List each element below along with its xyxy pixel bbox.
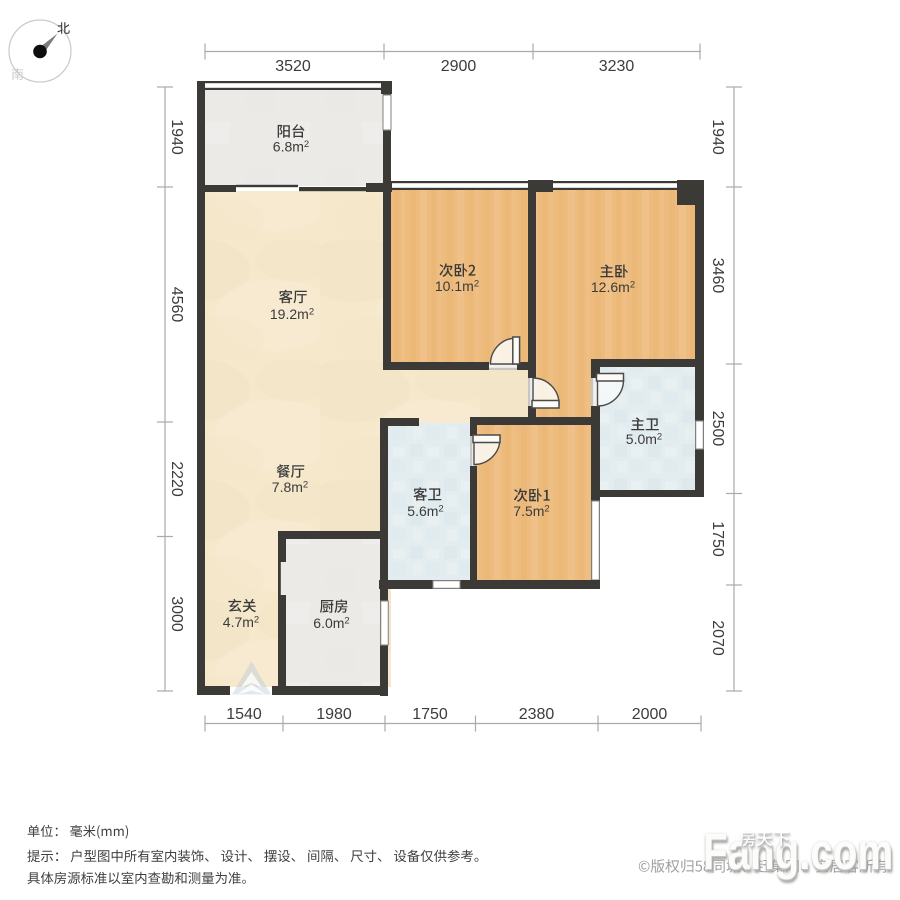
svg-text:6.8m2: 6.8m2 bbox=[273, 139, 309, 155]
svg-text:12.6m2: 12.6m2 bbox=[591, 279, 635, 295]
svg-text:2220: 2220 bbox=[168, 461, 185, 497]
svg-text:1750: 1750 bbox=[709, 521, 726, 557]
svg-text:2900: 2900 bbox=[441, 58, 477, 75]
svg-text:2500: 2500 bbox=[709, 411, 726, 447]
svg-text:3000: 3000 bbox=[168, 596, 185, 632]
svg-text:2070: 2070 bbox=[709, 620, 726, 656]
svg-text:3230: 3230 bbox=[599, 58, 635, 75]
svg-text:Fang.com: Fang.com bbox=[703, 822, 893, 880]
svg-text:5.0m2: 5.0m2 bbox=[626, 431, 662, 447]
svg-text:2000: 2000 bbox=[632, 706, 668, 723]
svg-text:3460: 3460 bbox=[709, 258, 726, 294]
svg-text:1940: 1940 bbox=[709, 119, 726, 155]
svg-text:1980: 1980 bbox=[316, 706, 352, 723]
svg-text:5.6m2: 5.6m2 bbox=[407, 503, 443, 519]
svg-text:4.7m2: 4.7m2 bbox=[223, 614, 259, 630]
svg-text:7.8m2: 7.8m2 bbox=[272, 479, 308, 495]
svg-text:3520: 3520 bbox=[275, 58, 311, 75]
svg-text:4560: 4560 bbox=[168, 287, 185, 323]
svg-text:19.2m2: 19.2m2 bbox=[270, 306, 314, 322]
svg-text:1750: 1750 bbox=[412, 706, 448, 723]
svg-text:10.1m2: 10.1m2 bbox=[435, 278, 479, 294]
svg-text:2380: 2380 bbox=[519, 706, 555, 723]
svg-text:7.5m2: 7.5m2 bbox=[513, 503, 549, 519]
svg-text:1940: 1940 bbox=[168, 119, 185, 155]
svg-text:1540: 1540 bbox=[226, 706, 262, 723]
svg-text:6.0m2: 6.0m2 bbox=[313, 615, 349, 631]
